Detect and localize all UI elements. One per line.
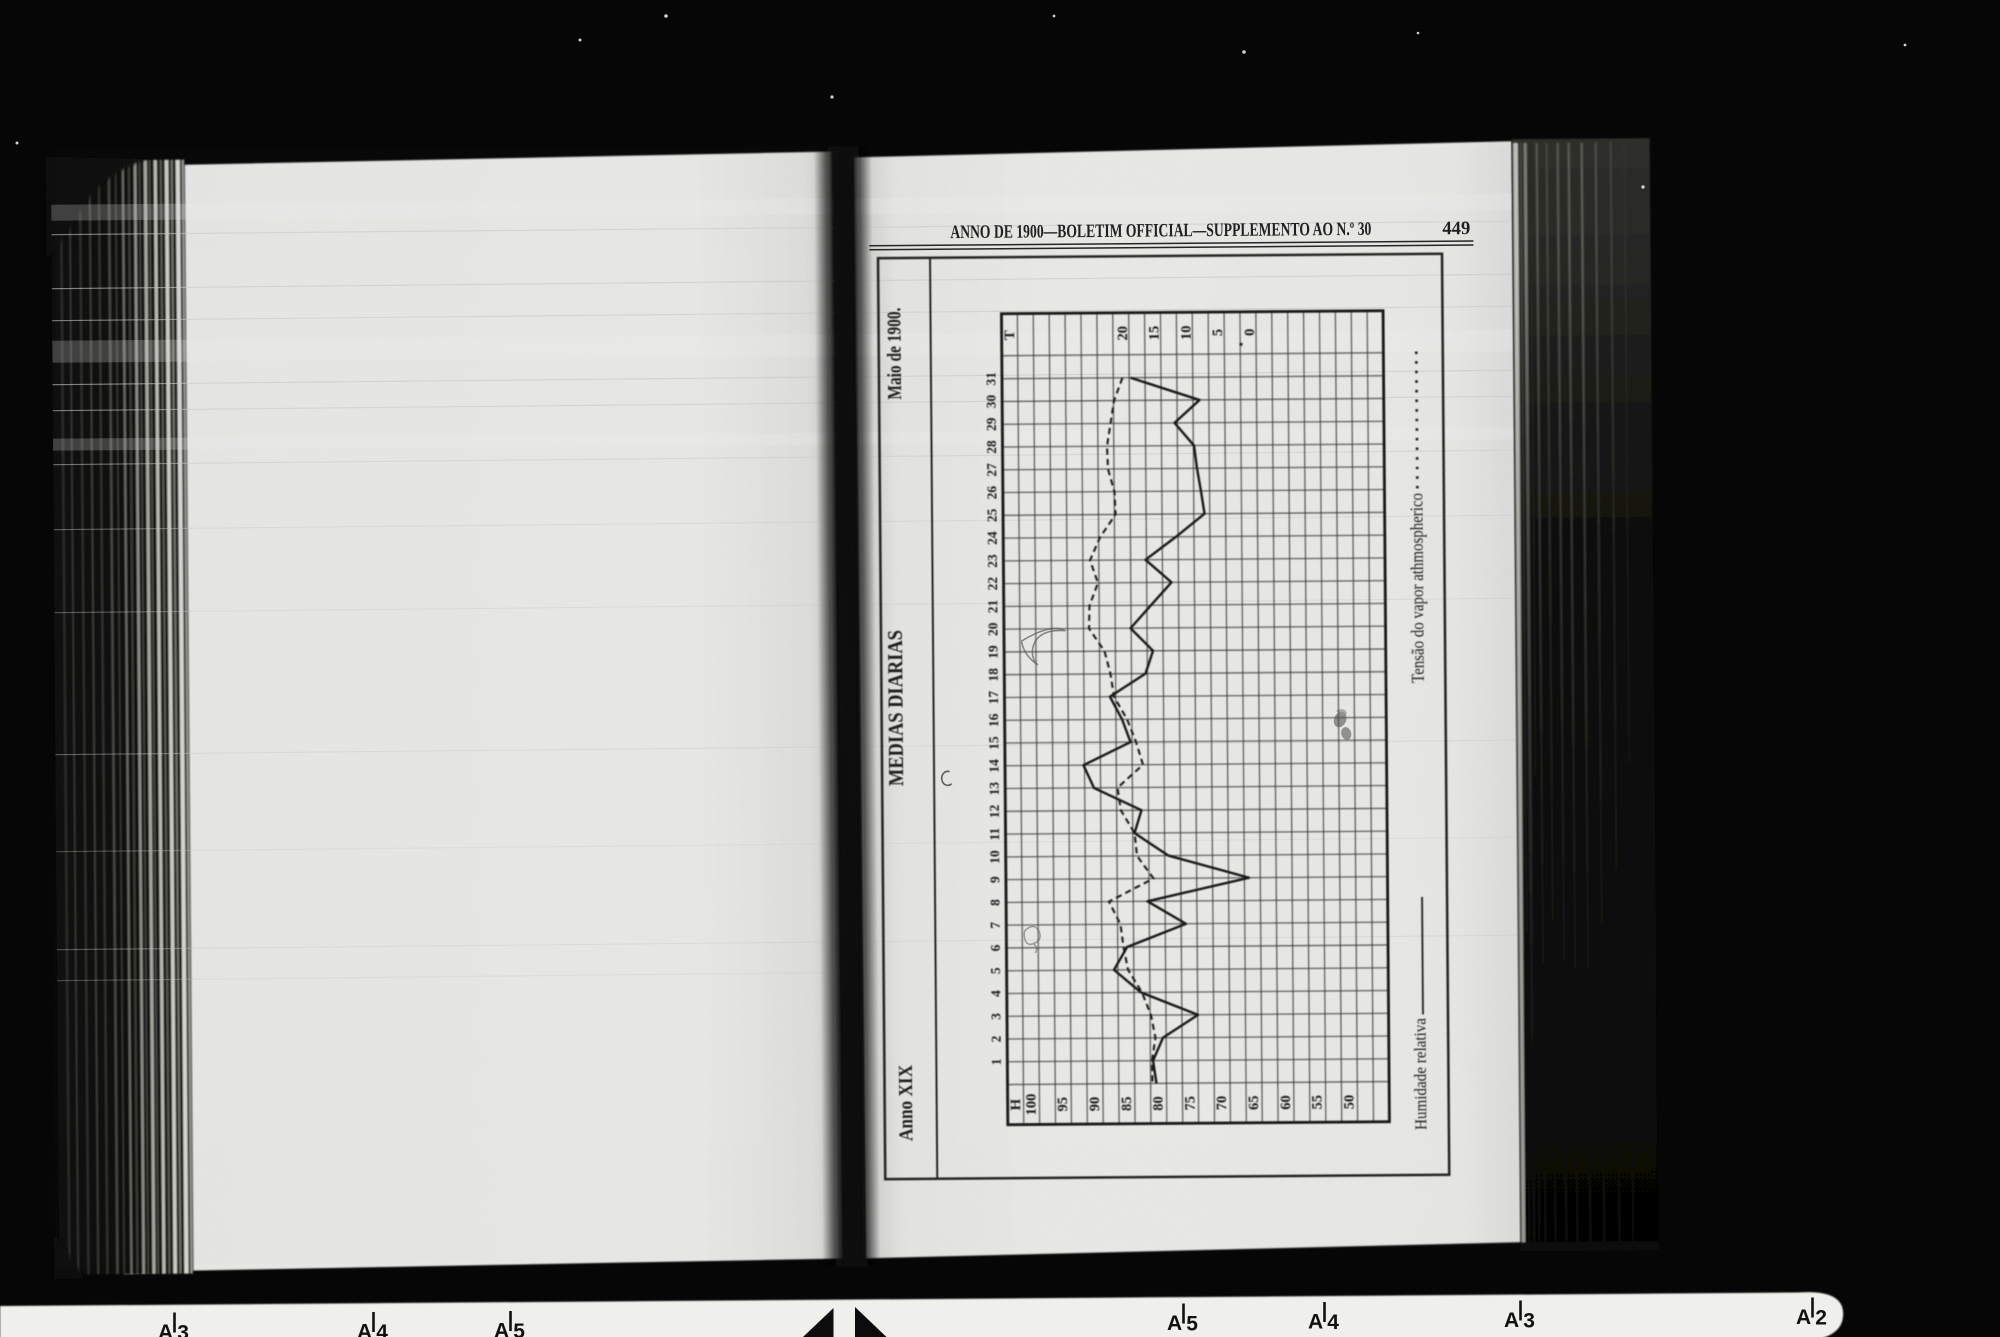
svg-text:4: 4 bbox=[1327, 1311, 1339, 1334]
svg-text:5: 5 bbox=[513, 1320, 525, 1337]
svg-text:A: A bbox=[1167, 1312, 1182, 1335]
svg-text:A: A bbox=[158, 1321, 173, 1337]
svg-text:A: A bbox=[1504, 1309, 1519, 1332]
svg-text:3: 3 bbox=[1523, 1310, 1535, 1333]
svg-text:A: A bbox=[357, 1321, 372, 1337]
svg-text:5: 5 bbox=[1186, 1313, 1198, 1336]
svg-text:3: 3 bbox=[177, 1322, 189, 1337]
svg-text:A: A bbox=[494, 1320, 509, 1337]
svg-text:A: A bbox=[1796, 1306, 1811, 1329]
svg-text:4: 4 bbox=[376, 1321, 388, 1337]
svg-text:2: 2 bbox=[1815, 1307, 1827, 1330]
svg-text:A: A bbox=[1308, 1311, 1323, 1334]
